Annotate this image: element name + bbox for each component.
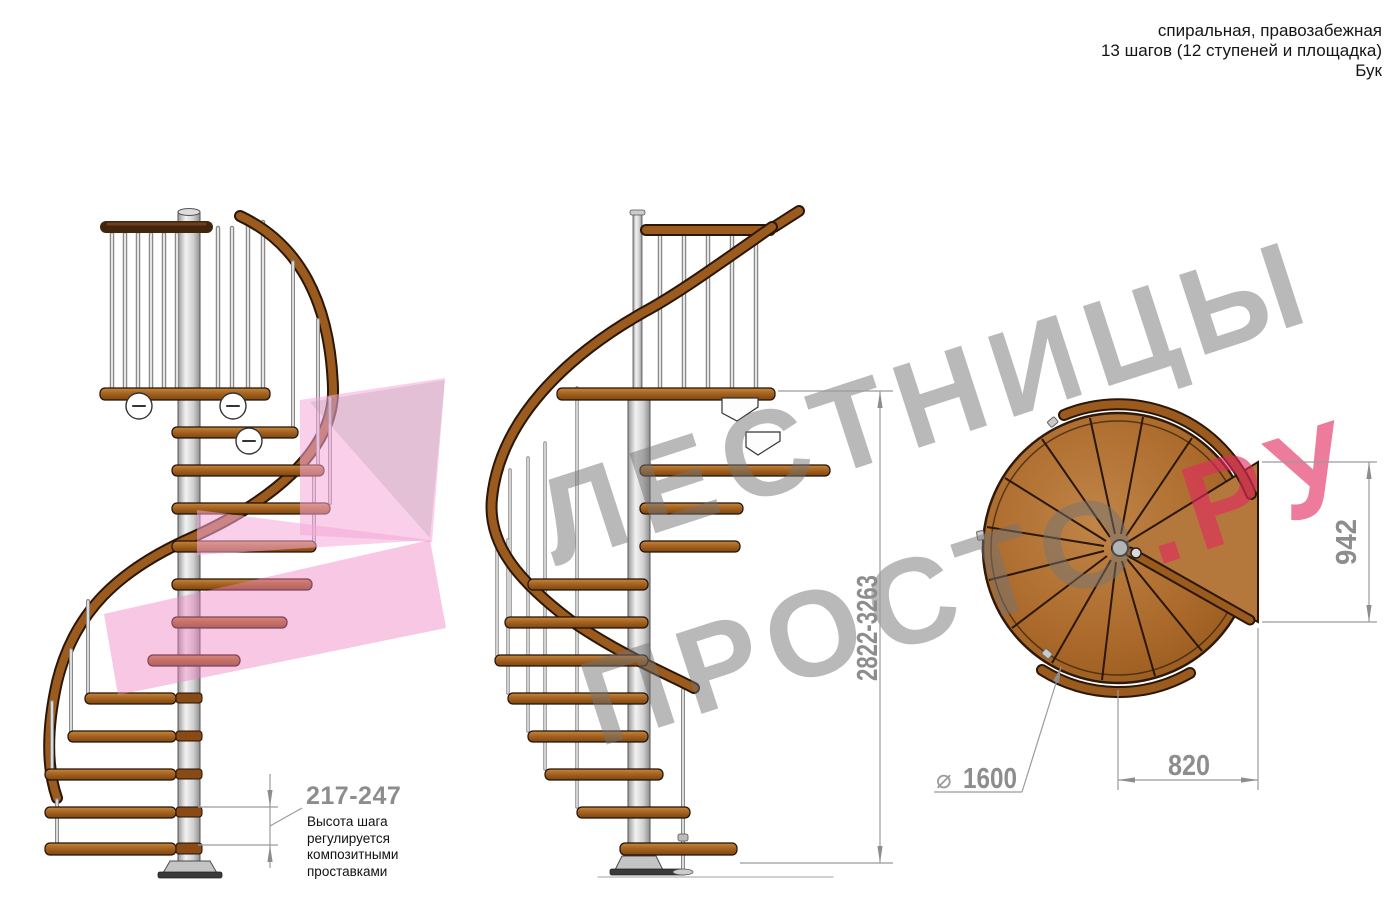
- dimension-arrowheads: [267, 391, 1371, 863]
- drawing-header: спиральная, правозабежная 13 шагов (12 с…: [1101, 21, 1382, 81]
- note-line: проставками: [307, 864, 398, 881]
- diameter-symbol: ⌀: [936, 764, 952, 794]
- plan-width-label: 820: [1168, 750, 1210, 782]
- header-line-material: Бук: [1101, 61, 1382, 81]
- header-line-steps: 13 шагов (12 ступеней и площадка): [1101, 41, 1382, 61]
- dimensions-layer: 2822-3263 942 820 ⌀ 1600 217-247: [0, 0, 1400, 917]
- step-height-dimension: [198, 774, 302, 868]
- note-line: Высота шага: [307, 814, 398, 831]
- technical-drawing-page: ЛЕСТНИЦЫ ПРОСТО.РУ: [0, 0, 1400, 917]
- header-line-type: спиральная, правозабежная: [1101, 21, 1382, 41]
- diameter-label: 1600: [963, 763, 1017, 795]
- step-height-note: Высота шага регулируется композитными пр…: [307, 814, 398, 880]
- note-line: композитными: [307, 847, 398, 864]
- total-height-label: 2822-3263: [852, 575, 884, 681]
- plan-height-label: 942: [1331, 519, 1363, 565]
- step-height-label: 217-247: [306, 782, 401, 810]
- note-line: регулируется: [307, 831, 398, 848]
